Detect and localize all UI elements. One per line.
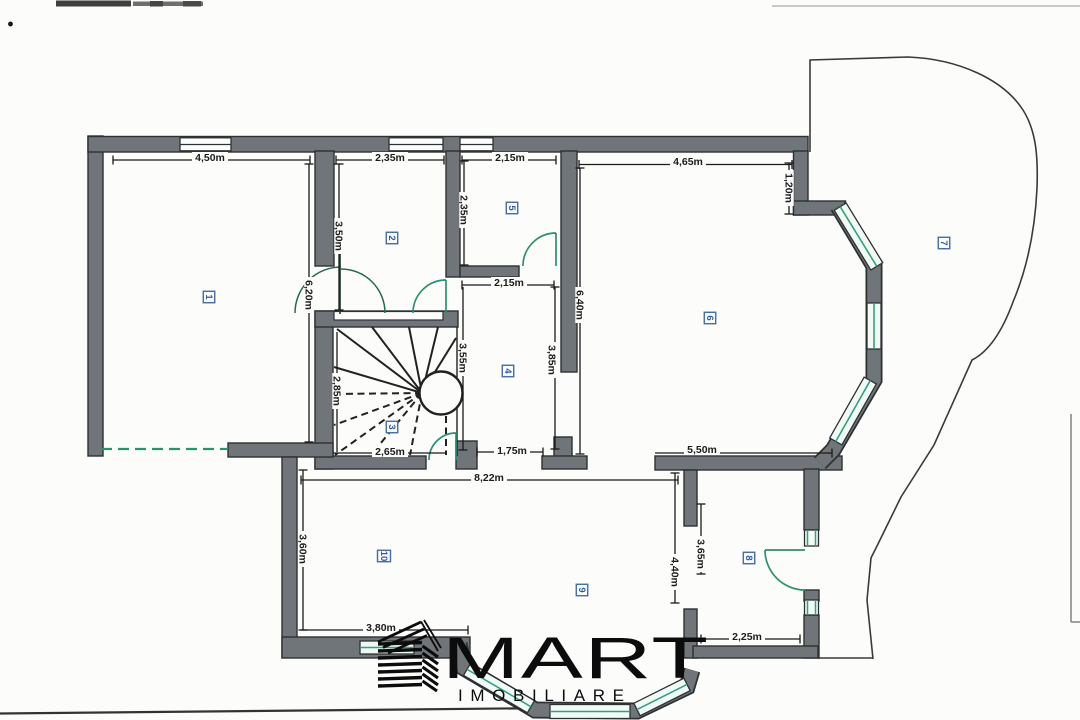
- svg-text:4,65m: 4,65m: [673, 156, 703, 168]
- svg-text:2,35m: 2,35m: [375, 152, 405, 164]
- svg-text:3,60m: 3,60m: [297, 534, 309, 564]
- svg-text:1,75m: 1,75m: [497, 445, 527, 457]
- svg-text:2,25m: 2,25m: [732, 631, 762, 643]
- svg-text:3,85m: 3,85m: [546, 345, 558, 375]
- svg-text:3,50m: 3,50m: [333, 221, 345, 251]
- svg-text:2,35m: 2,35m: [458, 195, 470, 225]
- svg-text:3,65m: 3,65m: [695, 539, 707, 569]
- svg-text:8: 8: [743, 555, 754, 560]
- svg-text:10: 10: [378, 551, 389, 562]
- svg-text:5,50m: 5,50m: [687, 444, 717, 456]
- svg-text:3,80m: 3,80m: [366, 622, 396, 634]
- svg-text:6,40m: 6,40m: [574, 290, 586, 320]
- svg-text:5: 5: [506, 205, 517, 211]
- svg-text:3: 3: [386, 424, 397, 429]
- svg-text:2,65m: 2,65m: [375, 446, 405, 458]
- svg-text:2,15m: 2,15m: [495, 152, 525, 164]
- svg-text:6: 6: [704, 315, 715, 320]
- svg-text:2,85m: 2,85m: [331, 376, 343, 406]
- svg-text:6,20m: 6,20m: [303, 280, 315, 310]
- svg-text:2,15m: 2,15m: [494, 277, 524, 289]
- svg-text:4,40m: 4,40m: [669, 557, 681, 587]
- svg-text:3,55m: 3,55m: [457, 343, 469, 373]
- svg-text:MART: MART: [442, 626, 710, 690]
- svg-text:8,22m: 8,22m: [474, 472, 504, 484]
- svg-text:4: 4: [502, 368, 513, 374]
- svg-text:9: 9: [576, 587, 587, 592]
- svg-text:1,20m: 1,20m: [783, 173, 795, 203]
- svg-text:7: 7: [938, 240, 949, 245]
- svg-text:1: 1: [203, 294, 214, 300]
- svg-text:4,50m: 4,50m: [195, 152, 225, 164]
- svg-text:2: 2: [386, 235, 397, 240]
